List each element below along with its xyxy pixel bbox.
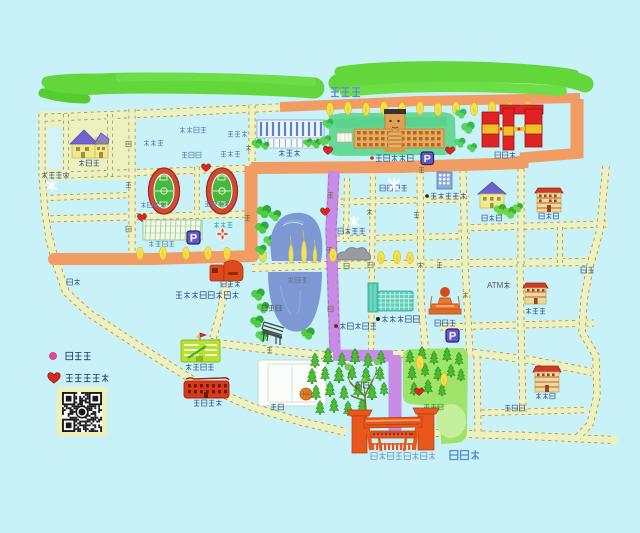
svg-text:P: P — [190, 233, 197, 245]
svg-text:P: P — [449, 331, 456, 343]
svg-text:P: P — [424, 153, 431, 165]
svg-text:ATM: ATM — [487, 281, 504, 290]
